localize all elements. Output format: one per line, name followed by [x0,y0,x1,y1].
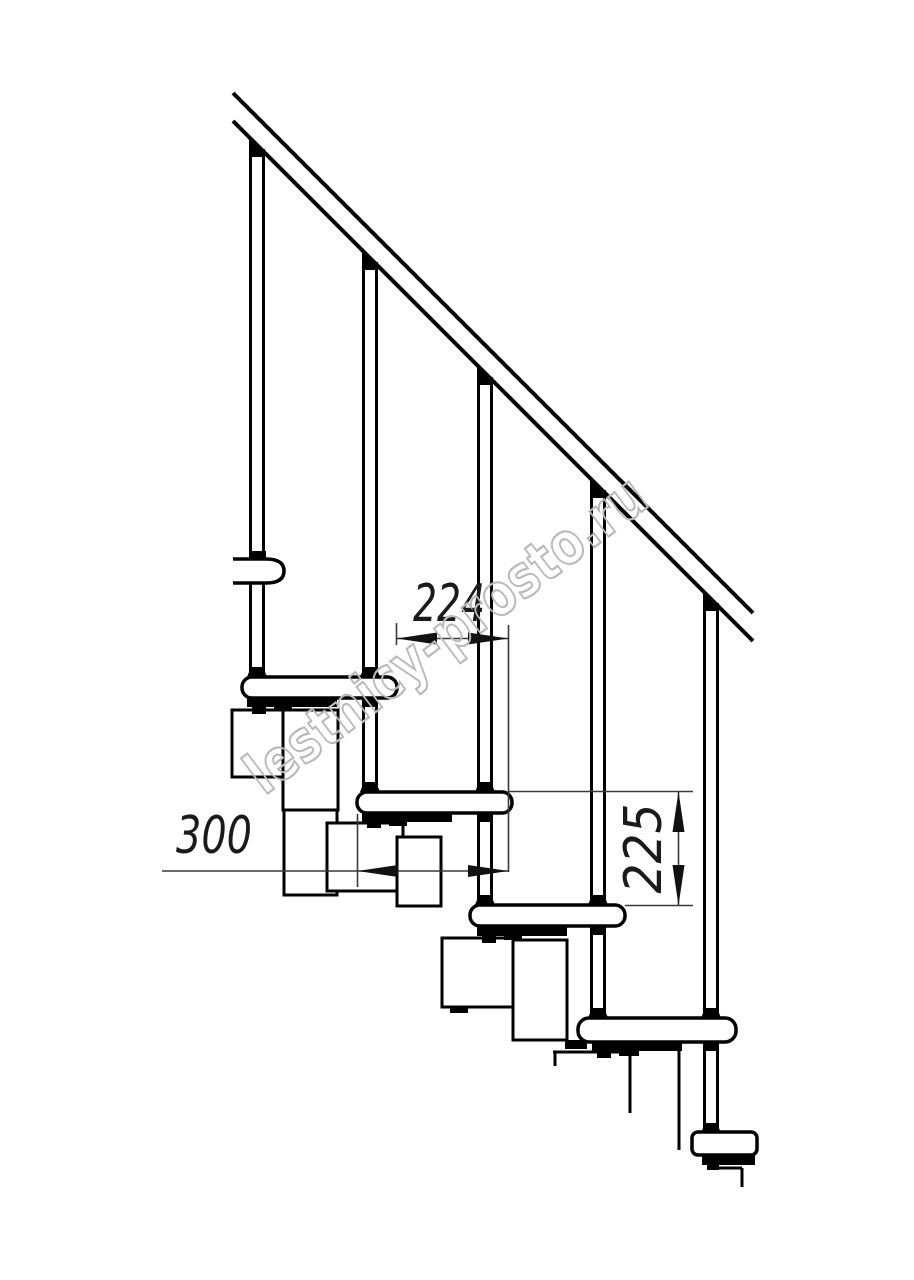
mount-tab [619,1049,639,1056]
support-module [513,940,567,1040]
staircase-drawing-canvas: 224 300 225 [0,0,914,1280]
baluster [592,492,605,1018]
mount-tab [565,1040,587,1049]
tread [578,1018,736,1042]
mount-tab [252,707,266,714]
tread-partial [692,1132,757,1155]
support-module [327,823,403,891]
arrowhead-down [673,865,685,906]
mount-tab [389,820,407,826]
collar [590,926,606,935]
mount-tab [482,936,496,943]
mount-tab [367,822,381,828]
collar [703,1042,719,1051]
mount-tab [450,1007,468,1013]
arrowhead-up [673,792,685,833]
baluster [705,605,718,1133]
support-module [442,938,517,1007]
mount-tab [707,1165,719,1170]
mount-strip [702,1154,755,1165]
mount-tab [504,934,522,940]
dimension-depth-label: 300 [176,806,252,866]
tread [470,905,625,926]
baluster [251,151,264,677]
collar [477,813,493,822]
dimension-rise-label: 225 [614,804,674,894]
mount-tab [597,1051,611,1058]
staircase-drawing: 224 300 225 [0,0,914,1280]
tread [357,792,512,813]
baluster-bracket [233,559,284,583]
baluster-bracket-group [233,551,284,583]
